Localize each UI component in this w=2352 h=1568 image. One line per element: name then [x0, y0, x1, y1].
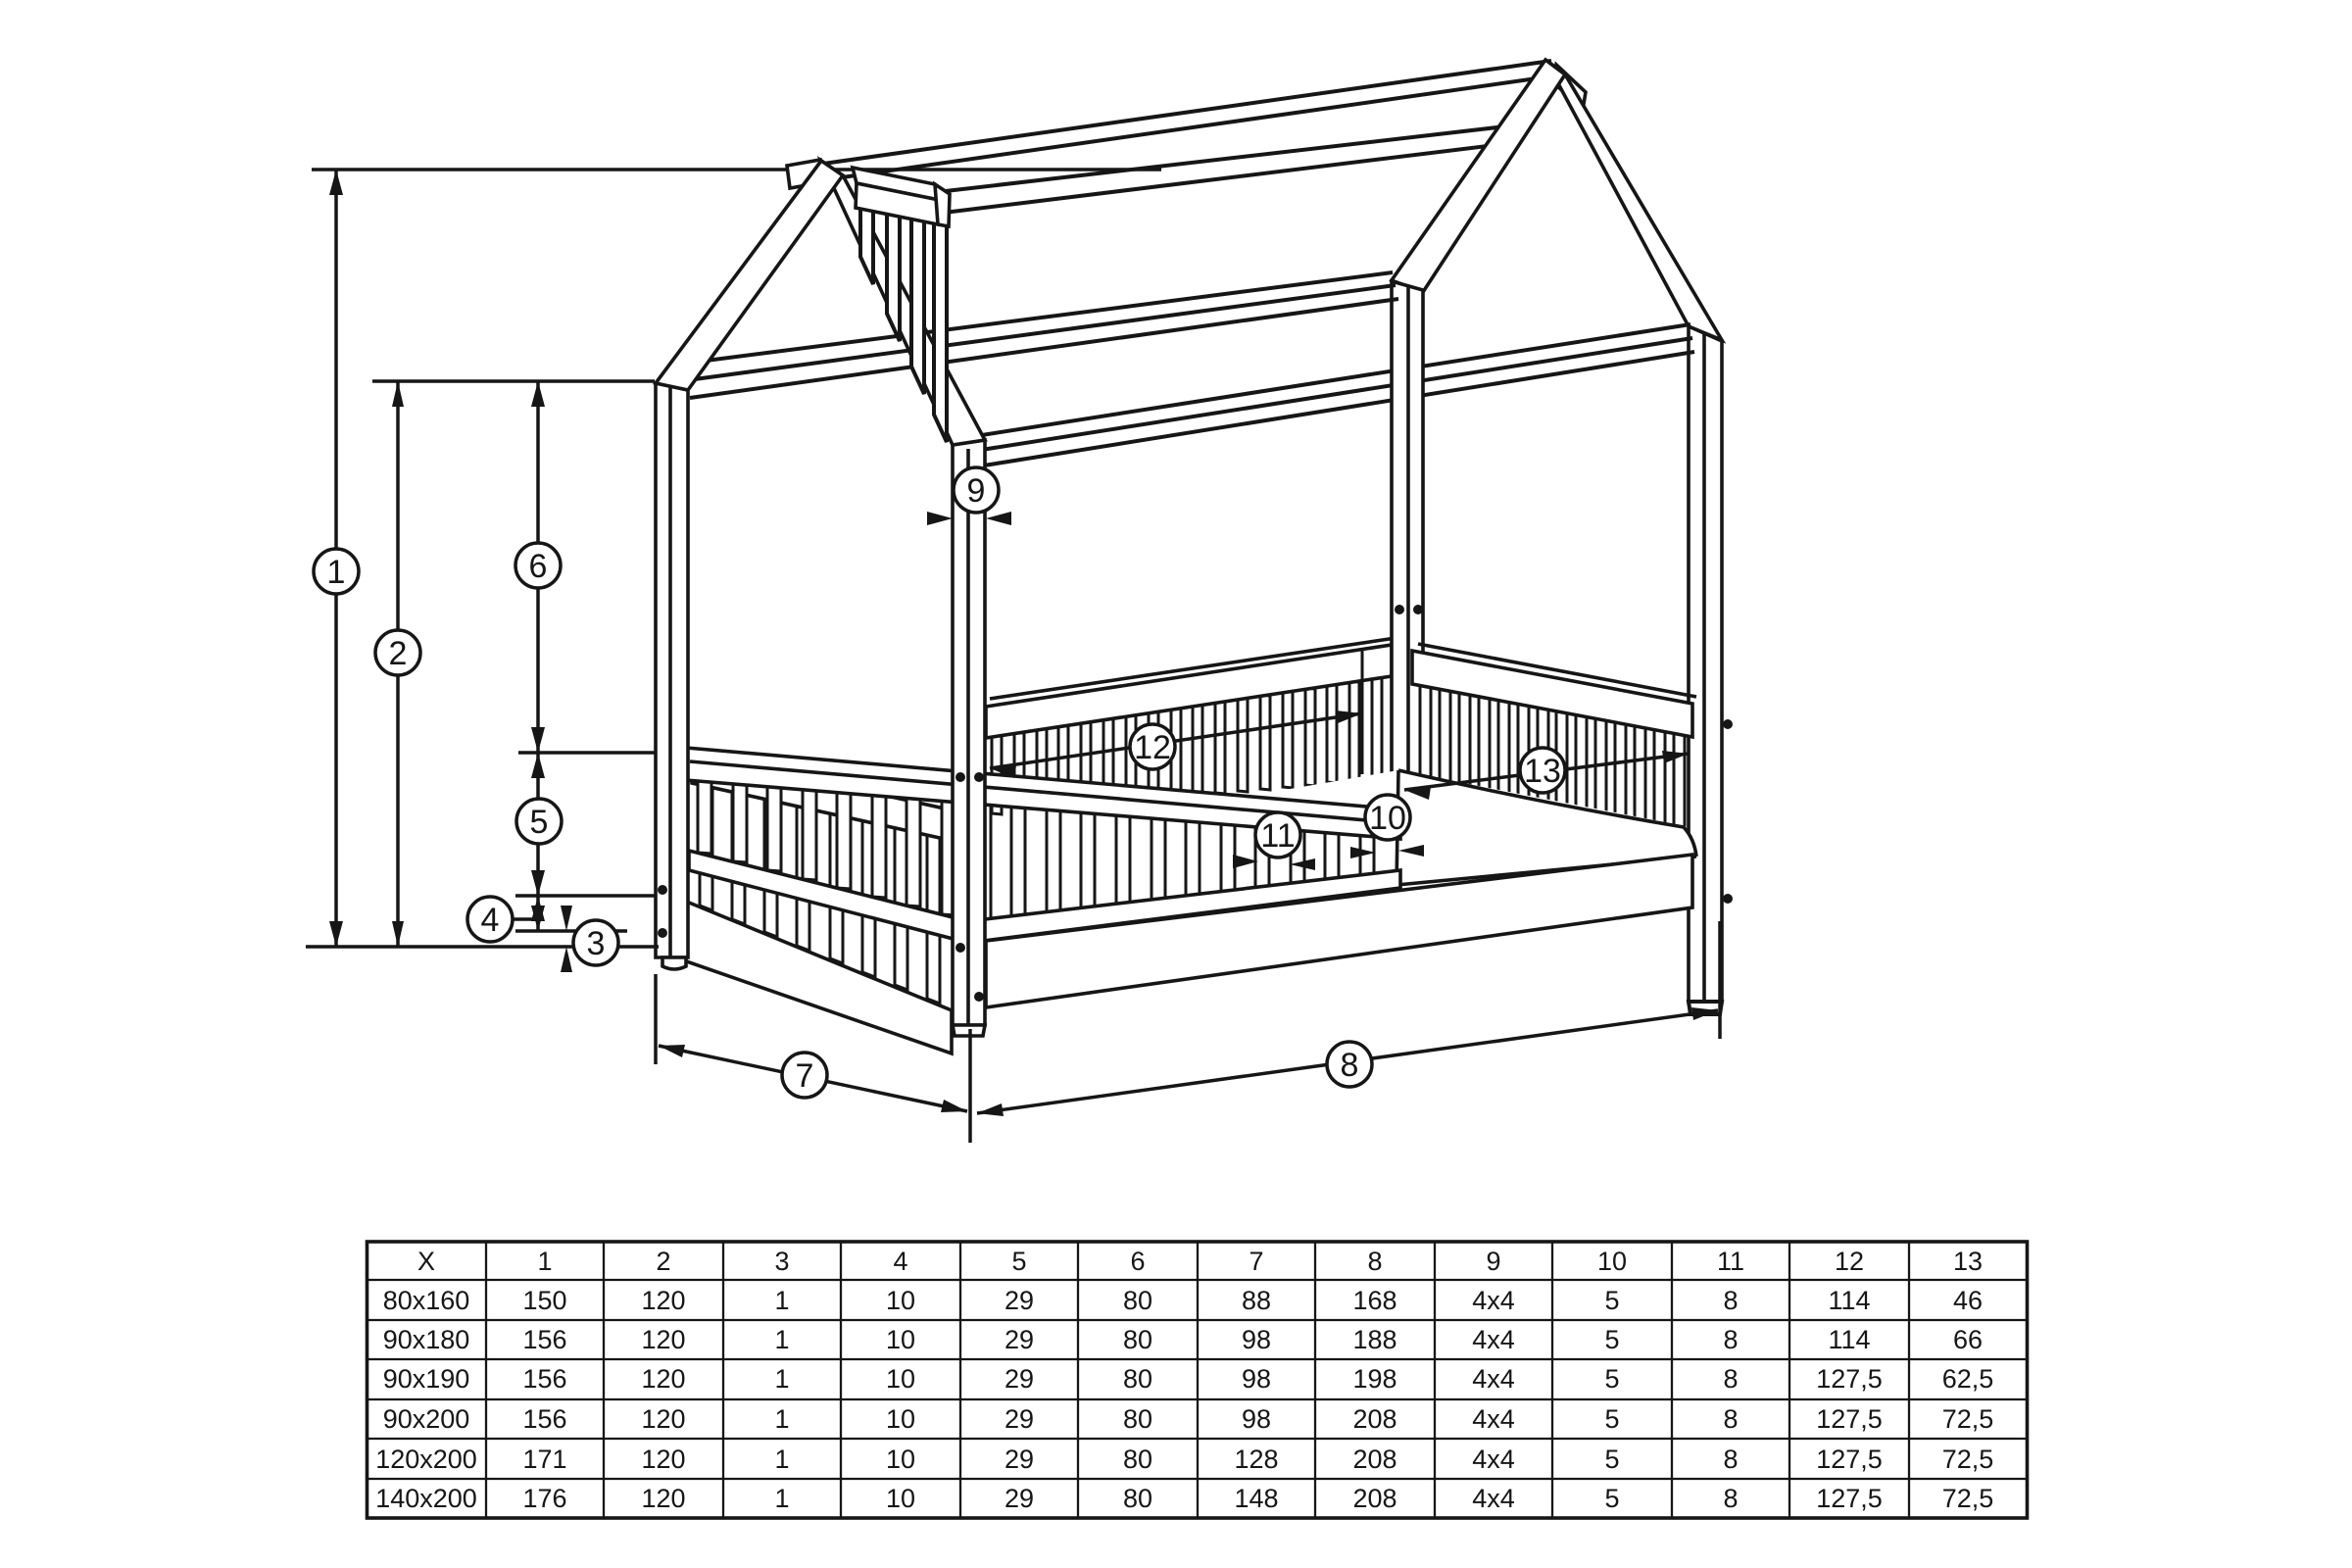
svg-text:3: 3	[774, 1247, 789, 1276]
svg-text:10: 10	[886, 1286, 915, 1315]
svg-text:120: 120	[641, 1286, 685, 1315]
svg-text:12: 12	[1835, 1247, 1864, 1276]
svg-text:29: 29	[1004, 1325, 1034, 1354]
svg-text:4x4: 4x4	[1472, 1286, 1515, 1315]
svg-text:29: 29	[1004, 1484, 1034, 1513]
svg-text:120: 120	[641, 1364, 685, 1394]
svg-text:29: 29	[1004, 1445, 1034, 1474]
svg-text:8: 8	[1723, 1364, 1738, 1394]
svg-text:62,5: 62,5	[1942, 1364, 1994, 1394]
svg-text:72,5: 72,5	[1942, 1404, 1994, 1434]
svg-text:148: 148	[1234, 1484, 1278, 1513]
svg-text:9: 9	[1486, 1247, 1500, 1276]
svg-text:120: 120	[641, 1404, 685, 1434]
svg-text:128: 128	[1234, 1445, 1278, 1474]
svg-text:188: 188	[1352, 1325, 1396, 1354]
svg-text:10: 10	[886, 1484, 915, 1513]
svg-text:120: 120	[641, 1445, 685, 1474]
svg-text:8: 8	[1341, 1047, 1359, 1084]
svg-text:11: 11	[1717, 1247, 1744, 1276]
svg-text:80: 80	[1123, 1364, 1152, 1394]
svg-text:6: 6	[1130, 1247, 1145, 1276]
svg-text:10: 10	[886, 1325, 915, 1354]
svg-text:10: 10	[886, 1445, 915, 1474]
svg-text:90x190: 90x190	[383, 1364, 470, 1394]
svg-text:127,5: 127,5	[1816, 1484, 1883, 1513]
svg-text:4x4: 4x4	[1472, 1484, 1515, 1513]
svg-text:198: 198	[1352, 1364, 1396, 1394]
svg-text:8: 8	[1723, 1325, 1738, 1354]
svg-text:98: 98	[1242, 1325, 1271, 1354]
svg-text:10: 10	[886, 1404, 915, 1434]
svg-text:12: 12	[1134, 729, 1171, 766]
svg-text:80: 80	[1123, 1325, 1152, 1354]
svg-text:11: 11	[1260, 817, 1295, 855]
svg-text:8: 8	[1723, 1286, 1738, 1315]
svg-text:29: 29	[1004, 1286, 1034, 1315]
svg-text:72,5: 72,5	[1942, 1484, 1994, 1513]
svg-text:10: 10	[1597, 1247, 1627, 1276]
svg-text:168: 168	[1352, 1286, 1396, 1315]
svg-text:X: X	[417, 1247, 435, 1276]
svg-text:150: 150	[522, 1286, 566, 1315]
svg-text:140x200: 140x200	[375, 1484, 477, 1513]
svg-text:4: 4	[481, 902, 500, 939]
svg-text:3: 3	[587, 925, 606, 962]
svg-text:4x4: 4x4	[1472, 1364, 1515, 1394]
svg-text:29: 29	[1004, 1364, 1034, 1394]
svg-text:1: 1	[537, 1247, 552, 1276]
svg-text:208: 208	[1352, 1445, 1396, 1474]
svg-text:4x4: 4x4	[1472, 1325, 1515, 1354]
svg-text:1: 1	[774, 1404, 789, 1434]
svg-text:114: 114	[1828, 1286, 1870, 1315]
svg-text:156: 156	[522, 1364, 566, 1394]
svg-text:1: 1	[327, 554, 346, 591]
svg-text:5: 5	[1604, 1286, 1619, 1315]
svg-text:9: 9	[967, 472, 986, 510]
svg-text:5: 5	[1604, 1364, 1619, 1394]
svg-text:98: 98	[1242, 1404, 1271, 1434]
svg-text:1: 1	[774, 1364, 789, 1394]
svg-text:1: 1	[774, 1445, 789, 1474]
svg-text:7: 7	[796, 1057, 814, 1095]
svg-text:80x160: 80x160	[383, 1286, 470, 1315]
svg-text:176: 176	[522, 1484, 566, 1513]
svg-text:5: 5	[1604, 1404, 1619, 1434]
svg-text:1: 1	[774, 1325, 789, 1354]
svg-text:66: 66	[1953, 1325, 1983, 1354]
svg-text:5: 5	[1604, 1325, 1619, 1354]
svg-text:127,5: 127,5	[1816, 1445, 1883, 1474]
svg-text:8: 8	[1723, 1445, 1738, 1474]
svg-text:10: 10	[886, 1364, 915, 1394]
svg-text:13: 13	[1524, 753, 1561, 790]
svg-text:29: 29	[1004, 1404, 1034, 1434]
svg-text:8: 8	[1367, 1247, 1382, 1276]
svg-text:1: 1	[774, 1286, 789, 1315]
svg-text:8: 8	[1723, 1484, 1738, 1513]
svg-text:127,5: 127,5	[1816, 1364, 1883, 1394]
svg-text:156: 156	[522, 1325, 566, 1354]
svg-text:80: 80	[1123, 1484, 1152, 1513]
svg-text:6: 6	[529, 548, 548, 585]
svg-text:120x200: 120x200	[375, 1445, 477, 1474]
svg-text:5: 5	[1011, 1247, 1026, 1276]
svg-text:90x180: 90x180	[383, 1325, 470, 1354]
svg-text:13: 13	[1953, 1247, 1983, 1276]
svg-text:114: 114	[1828, 1325, 1870, 1354]
svg-text:88: 88	[1242, 1286, 1271, 1315]
svg-text:1: 1	[774, 1484, 789, 1513]
svg-text:156: 156	[522, 1404, 566, 1434]
svg-text:72,5: 72,5	[1942, 1445, 1994, 1474]
svg-text:2: 2	[389, 635, 408, 672]
svg-text:5: 5	[1604, 1445, 1619, 1474]
svg-text:98: 98	[1242, 1364, 1271, 1394]
svg-text:8: 8	[1723, 1404, 1738, 1434]
svg-text:127,5: 127,5	[1816, 1404, 1883, 1434]
svg-text:5: 5	[530, 804, 549, 841]
svg-text:80: 80	[1123, 1445, 1152, 1474]
svg-text:80: 80	[1123, 1404, 1152, 1434]
svg-text:4x4: 4x4	[1472, 1445, 1515, 1474]
svg-text:4x4: 4x4	[1472, 1404, 1515, 1434]
svg-text:10: 10	[1369, 800, 1406, 837]
svg-text:2: 2	[656, 1247, 670, 1276]
svg-text:90x200: 90x200	[383, 1404, 470, 1434]
svg-text:4: 4	[893, 1247, 907, 1276]
svg-text:120: 120	[641, 1325, 685, 1354]
svg-text:80: 80	[1123, 1286, 1152, 1315]
svg-text:171: 171	[522, 1445, 566, 1474]
svg-text:7: 7	[1249, 1247, 1263, 1276]
svg-text:5: 5	[1604, 1484, 1619, 1513]
svg-text:120: 120	[641, 1484, 685, 1513]
svg-text:208: 208	[1352, 1484, 1396, 1513]
svg-text:46: 46	[1953, 1286, 1983, 1315]
svg-text:208: 208	[1352, 1404, 1396, 1434]
